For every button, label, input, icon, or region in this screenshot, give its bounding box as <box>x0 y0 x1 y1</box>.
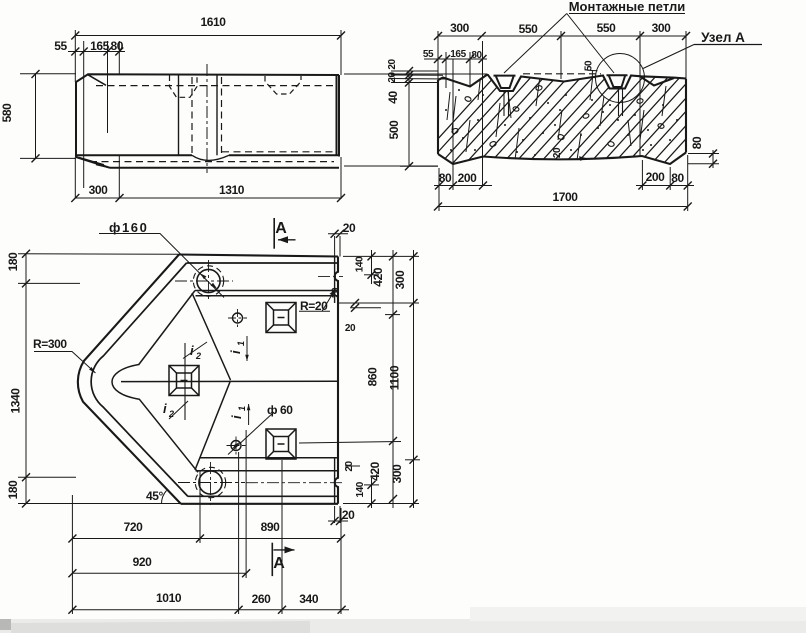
svg-text:140: 140 <box>354 256 365 272</box>
svg-text:420: 420 <box>368 461 382 481</box>
svg-text:R=20: R=20 <box>300 299 328 313</box>
svg-text:2: 2 <box>168 409 174 419</box>
svg-text:Узел А: Узел А <box>701 30 745 45</box>
svg-text:1700: 1700 <box>552 190 578 204</box>
svg-text:180: 180 <box>6 252 20 272</box>
svg-text:920: 920 <box>133 555 153 569</box>
svg-text:200: 200 <box>646 170 666 184</box>
svg-text:50: 50 <box>584 60 595 71</box>
svg-text:300: 300 <box>390 464 404 484</box>
svg-text:300: 300 <box>450 21 470 35</box>
svg-text:80: 80 <box>471 50 482 61</box>
svg-text:20: 20 <box>345 323 356 334</box>
svg-text:1340: 1340 <box>8 388 22 414</box>
svg-text:165: 165 <box>90 39 110 53</box>
svg-text:55: 55 <box>423 49 434 60</box>
svg-text:ф160: ф160 <box>109 220 148 235</box>
svg-text:80: 80 <box>690 136 704 149</box>
svg-text:20: 20 <box>387 59 398 70</box>
svg-text:165: 165 <box>450 49 466 60</box>
svg-text:А: А <box>275 220 287 237</box>
svg-text:580: 580 <box>0 103 14 123</box>
svg-text:200: 200 <box>458 171 478 185</box>
svg-text:340: 340 <box>299 592 319 606</box>
svg-text:80: 80 <box>671 171 684 185</box>
svg-text:550: 550 <box>597 21 617 35</box>
svg-text:180: 180 <box>6 480 20 500</box>
svg-text:300: 300 <box>89 183 109 197</box>
svg-text:45°: 45° <box>146 489 164 503</box>
svg-text:20: 20 <box>343 221 356 235</box>
svg-text:20: 20 <box>552 147 563 158</box>
svg-text:1: 1 <box>237 406 247 411</box>
svg-text:1610: 1610 <box>200 15 226 29</box>
svg-text:55: 55 <box>54 39 67 53</box>
svg-text:300: 300 <box>393 270 407 290</box>
svg-text:Монтажные петли: Монтажные петли <box>569 0 686 14</box>
svg-text:720: 720 <box>124 520 144 534</box>
svg-text:140: 140 <box>355 481 366 497</box>
svg-text:40: 40 <box>386 91 400 104</box>
svg-text:А: А <box>273 555 285 572</box>
svg-text:420: 420 <box>371 267 385 287</box>
svg-text:20: 20 <box>331 287 342 298</box>
svg-text:300: 300 <box>652 21 672 35</box>
svg-text:R=300: R=300 <box>33 337 67 351</box>
svg-text:20: 20 <box>387 72 398 83</box>
svg-text:260: 260 <box>252 592 272 606</box>
svg-text:2: 2 <box>195 351 201 361</box>
svg-text:1: 1 <box>236 341 246 346</box>
svg-text:550: 550 <box>519 22 539 36</box>
svg-text:1010: 1010 <box>156 591 182 605</box>
svg-text:890: 890 <box>261 520 281 534</box>
svg-text:20: 20 <box>342 508 355 522</box>
svg-text:20: 20 <box>344 461 355 472</box>
svg-text:1310: 1310 <box>219 183 245 197</box>
svg-text:500: 500 <box>387 120 401 140</box>
svg-text:80: 80 <box>111 39 124 53</box>
svg-text:1100: 1100 <box>387 365 401 390</box>
svg-text:80: 80 <box>439 171 452 185</box>
svg-text:ф 60: ф 60 <box>267 403 293 417</box>
svg-text:860: 860 <box>365 367 379 387</box>
